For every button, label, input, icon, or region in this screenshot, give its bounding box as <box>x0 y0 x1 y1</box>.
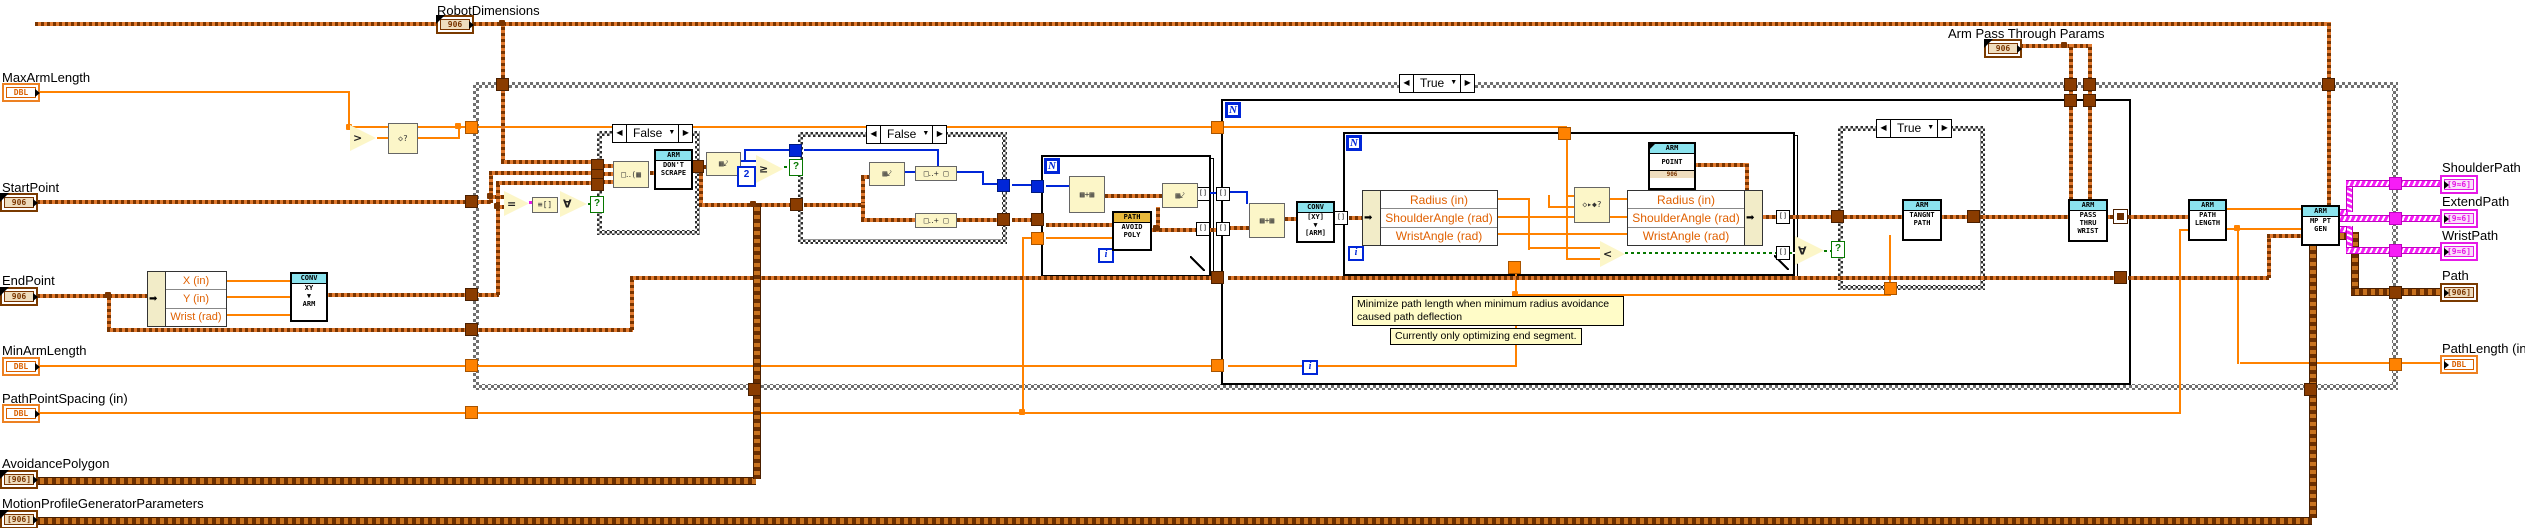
index-array-function[interactable]: □‥+ □ <box>915 213 957 228</box>
point-loop-iterator: i <box>1348 246 1364 261</box>
shoulder-path-terminal[interactable]: [9≈6] <box>2440 175 2478 194</box>
vi-path-avoid-poly[interactable]: PATHAVOIDPOLY <box>1112 211 1152 251</box>
vi-arm-pass-thru-wrist[interactable]: ARMPASSTHRUWRIST <box>2068 199 2108 242</box>
path-terminal[interactable]: [906] <box>2440 283 2478 302</box>
in-range-coerce-function[interactable]: ◇▸◆? <box>1574 187 1610 223</box>
avoidance-polygon-terminal[interactable]: [906] <box>0 470 38 489</box>
min-arm-length-label: MinArmLength <box>2 343 87 358</box>
robot-dimensions-terminal[interactable]: 906 <box>436 15 474 34</box>
main-loop-iterator: i <box>1302 360 1318 375</box>
max-arm-length-terminal[interactable]: DBL <box>2 83 40 102</box>
comment-minimize-path[interactable]: Minimize path length when minimum radius… <box>1352 296 1624 326</box>
select-function[interactable]: ◇? <box>388 123 418 154</box>
vi-conv-xy-arm[interactable]: CONVXY▼ARM <box>290 272 328 322</box>
avoidance-polygon-label: AvoidancePolygon <box>2 456 109 471</box>
extend-path-terminal[interactable]: [9≈6] <box>2440 209 2478 228</box>
arm-pass-through-terminal[interactable]: 906 <box>1984 39 2022 58</box>
vi-arm-dont-scrape[interactable]: ARMDON'TSCRAPE <box>654 149 693 190</box>
build-array-function[interactable]: ▦+▦ <box>1069 176 1105 213</box>
case3-selector[interactable]: ◀True▼▶ <box>1876 119 1952 138</box>
bundle-arm-point[interactable]: Radius (in) ShoulderAngle (rad) WristAng… <box>1627 190 1763 246</box>
vi-arm-path-length[interactable]: ARMPATHLENGTH <box>2188 199 2227 241</box>
point-loop-count: N <box>1346 135 1362 151</box>
case1-selector[interactable]: ◀False▼▶ <box>612 124 693 143</box>
greater-function[interactable]: > <box>350 125 376 151</box>
shoulder-path-label: ShoulderPath <box>2442 160 2521 175</box>
unbundle-endpoint[interactable]: ➡ X (in) Y (in) Wrist (rad) <box>147 271 227 327</box>
cluster-to-array-function[interactable]: ≡[] <box>532 197 558 213</box>
array-size-function[interactable]: ▦⤦ <box>706 152 741 176</box>
motion-profile-params-terminal[interactable]: [906] <box>0 510 38 528</box>
path-label: Path <box>2442 268 2469 283</box>
vi-arm-mp-pt-gen[interactable]: ARMMP PTGEN <box>2301 205 2340 246</box>
avoid-loop-count: N <box>1044 158 1060 174</box>
typedef-dogear <box>1648 142 1657 151</box>
case2-selector[interactable]: ◀False▼▶ <box>866 125 947 144</box>
arm-pass-through-label: Arm Pass Through Params <box>1948 26 2105 41</box>
build-cluster-array-function[interactable]: □‥(▦ <box>613 161 649 188</box>
vi-arm-tangent-path[interactable]: ARMTANGNTPATH <box>1902 199 1942 241</box>
start-point-terminal[interactable]: 906 <box>0 193 38 212</box>
min-arm-length-terminal[interactable]: DBL <box>2 357 40 376</box>
main-loop-count: N <box>1225 102 1241 118</box>
vi-conv-xy-arm-array[interactable]: CONV[XY]▼[ARM] <box>1296 201 1335 243</box>
index-array-function[interactable]: □‥+ □ <box>915 166 957 181</box>
build-array-function[interactable]: ▦+▦ <box>1249 203 1285 238</box>
comment-optimizing-end[interactable]: Currently only optimizing end segment. <box>1390 328 1582 345</box>
path-point-spacing-terminal[interactable]: DBL <box>2 404 40 423</box>
labview-block-diagram: ? ? [][] [][] [] [][] ? ◀True▼▶ ◀False▼▶… <box>0 0 2525 528</box>
path-length-label: PathLength (in) <box>2442 341 2525 356</box>
array-size-function[interactable]: ▦⤦ <box>869 162 905 186</box>
extend-path-label: ExtendPath <box>2442 194 2509 209</box>
outer-case-selector[interactable]: ◀True▼▶ <box>1399 74 1475 93</box>
page-curl <box>1190 256 1205 271</box>
motion-profile-params-label: MotionProfileGeneratorParameters <box>2 496 204 511</box>
unbundle-arm-point[interactable]: ➡ Radius (in) ShoulderAngle (rad) WristA… <box>1362 190 1498 246</box>
path-length-terminal[interactable]: DBL <box>2440 355 2478 374</box>
interpolate-array-function[interactable]: ▦⤦ <box>1162 183 1198 208</box>
end-point-label: EndPoint <box>2 273 55 288</box>
numeric-constant-2[interactable]: 2 <box>737 166 756 187</box>
wrist-path-terminal[interactable]: [9≈6] <box>2440 242 2478 261</box>
vi-arm-point[interactable]: ARMPOINT906 <box>1648 142 1696 190</box>
end-point-terminal[interactable]: 906 <box>0 287 38 306</box>
wrist-path-label: WristPath <box>2442 228 2498 243</box>
